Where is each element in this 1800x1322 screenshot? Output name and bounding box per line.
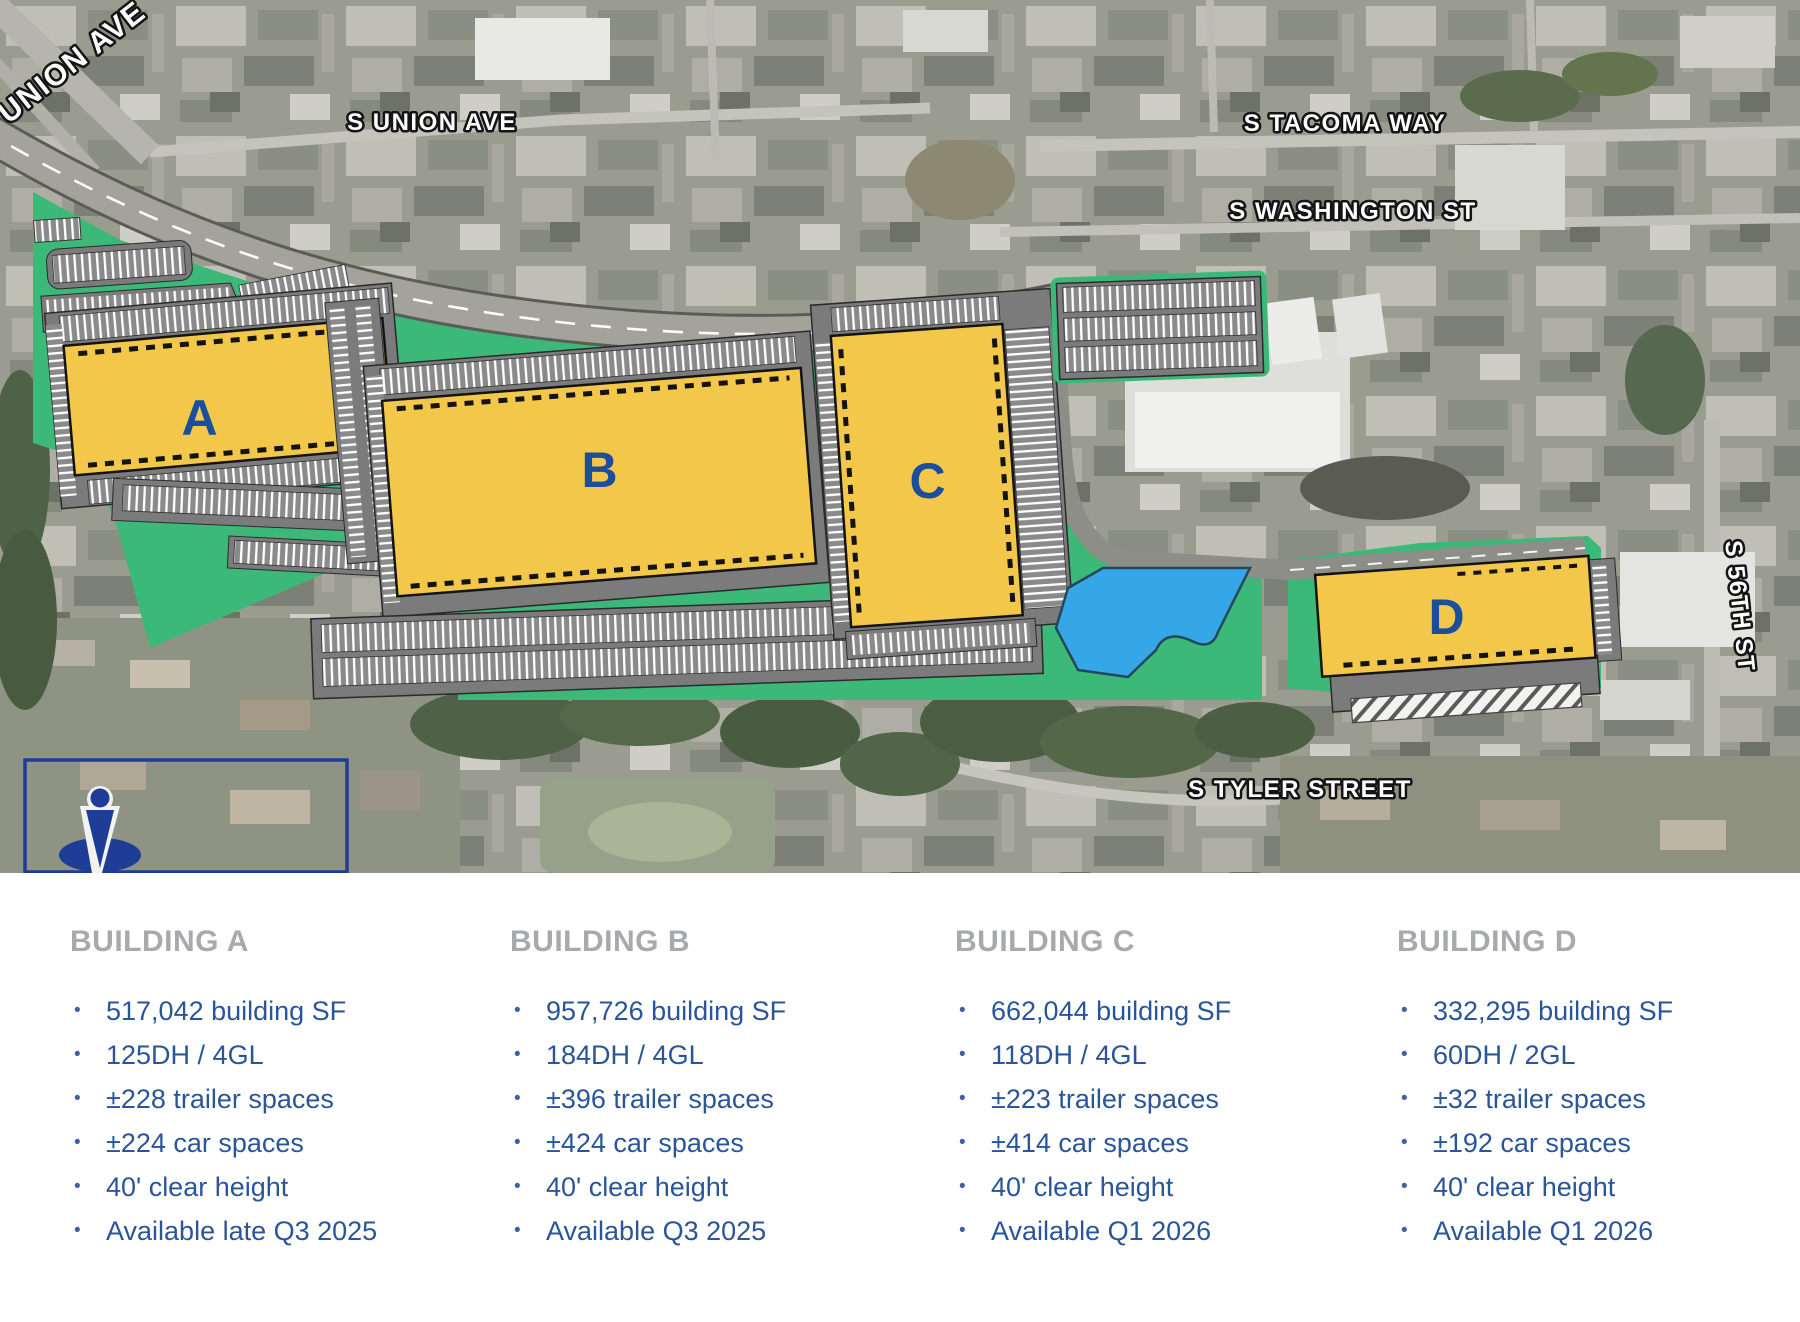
- flyer-page: A B C D UNION AVE S UNION AVE S TACOMA W…: [0, 0, 1800, 1322]
- building-a-doors: 125DH / 4GL: [70, 1033, 470, 1077]
- building-c-sf: 662,044 building SF: [955, 989, 1355, 1033]
- building-d-cluster: [1315, 554, 1625, 725]
- building-c-doors: 118DH / 4GL: [955, 1033, 1355, 1077]
- building-a-sf: 517,042 building SF: [70, 989, 470, 1033]
- s-tyler-street-label: S TYLER STREET: [1188, 776, 1412, 803]
- building-d-marker: D: [1428, 589, 1465, 645]
- s-tacoma-way-label: S TACOMA WAY: [1244, 110, 1446, 137]
- building-b-marker: B: [581, 442, 618, 498]
- building-b-car-spaces: ±424 car spaces: [510, 1121, 910, 1165]
- building-c-trailer-spaces: ±223 trailer spaces: [955, 1077, 1355, 1121]
- trailer-lot-northeast: [1050, 270, 1270, 383]
- building-a-heading: BUILDING A: [70, 925, 470, 959]
- building-b-sf: 957,726 building SF: [510, 989, 910, 1033]
- site-plan-map-section: A B C D UNION AVE S UNION AVE S TACOMA W…: [0, 0, 1800, 873]
- building-d-car-spaces: ±192 car spaces: [1397, 1121, 1797, 1165]
- building-a-car-spaces: ±224 car spaces: [70, 1121, 470, 1165]
- building-b-doors: 184DH / 4GL: [510, 1033, 910, 1077]
- building-b-details: BUILDING B 957,726 building SF 184DH / 4…: [510, 925, 910, 1253]
- building-c-marker: C: [909, 453, 946, 509]
- building-a-clear-height: 40' clear height: [70, 1165, 470, 1209]
- building-d-details: BUILDING D 332,295 building SF 60DH / 2G…: [1397, 925, 1797, 1253]
- building-a-trailer-spaces: ±228 trailer spaces: [70, 1077, 470, 1121]
- building-a-details: BUILDING A 517,042 building SF 125DH / 4…: [70, 925, 470, 1253]
- building-c-availability: Available Q1 2026: [955, 1209, 1355, 1253]
- building-b-availability: Available Q3 2025: [510, 1209, 910, 1253]
- building-c-car-spaces: ±414 car spaces: [955, 1121, 1355, 1165]
- building-d-doors: 60DH / 2GL: [1397, 1033, 1797, 1077]
- building-b-trailer-spaces: ±396 trailer spaces: [510, 1077, 910, 1121]
- building-d-heading: BUILDING D: [1397, 925, 1797, 959]
- s-washington-st-label: S WASHINGTON ST: [1229, 198, 1476, 225]
- building-a-availability: Available late Q3 2025: [70, 1209, 470, 1253]
- building-d-availability: Available Q1 2026: [1397, 1209, 1797, 1253]
- site-plan-svg: A B C D UNION AVE S UNION AVE S TACOMA W…: [0, 0, 1800, 873]
- building-c-heading: BUILDING C: [955, 925, 1355, 959]
- building-d-trailer-spaces: ±32 trailer spaces: [1397, 1077, 1797, 1121]
- building-b-heading: BUILDING B: [510, 925, 910, 959]
- building-d-sf: 332,295 building SF: [1397, 989, 1797, 1033]
- building-a-marker: A: [181, 390, 218, 446]
- building-c-clear-height: 40' clear height: [955, 1165, 1355, 1209]
- building-b-clear-height: 40' clear height: [510, 1165, 910, 1209]
- building-d-clear-height: 40' clear height: [1397, 1165, 1797, 1209]
- building-details-section: BUILDING A 517,042 building SF 125DH / 4…: [0, 873, 1800, 1322]
- building-c-details: BUILDING C 662,044 building SF 118DH / 4…: [955, 925, 1355, 1253]
- s-union-ave-label: S UNION AVE: [347, 109, 517, 136]
